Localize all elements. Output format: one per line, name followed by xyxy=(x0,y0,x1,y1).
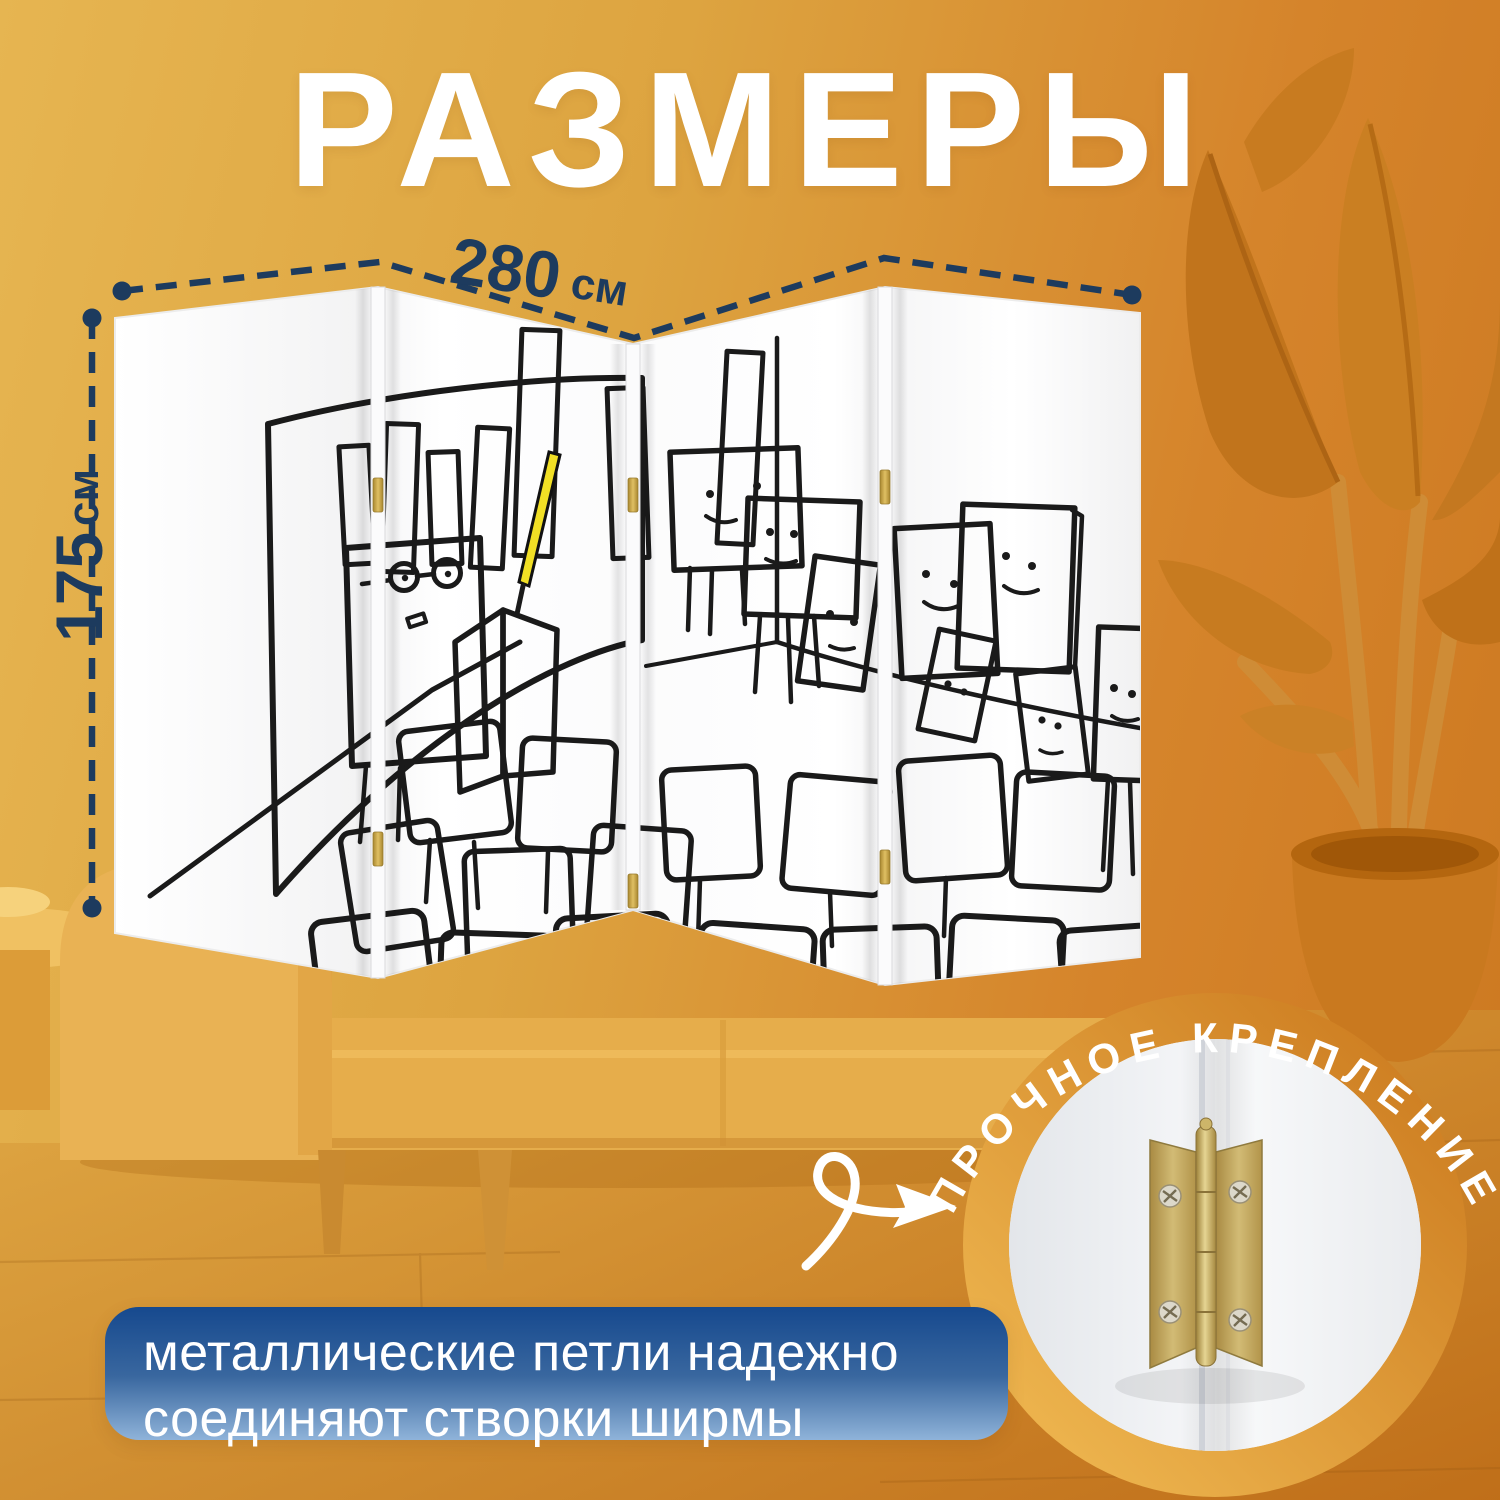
info-box-line1: металлические петли надежно xyxy=(143,1321,1008,1387)
height-unit: см xyxy=(59,469,108,526)
width-unit: см xyxy=(568,259,632,316)
height-value: 175 xyxy=(42,532,116,642)
hinge-photo xyxy=(1009,1039,1421,1451)
width-value: 280 xyxy=(446,223,566,313)
info-box: металлические петли надежно соединяют ст… xyxy=(105,1307,1008,1440)
info-box-line2: соединяют створки ширмы xyxy=(143,1387,1008,1453)
folding-screen xyxy=(115,287,1161,1051)
screen-panel-1 xyxy=(115,287,378,978)
height-dimension-line: 175 см xyxy=(42,309,116,918)
scene-graphic: 280 см 175 см xyxy=(0,0,1500,1500)
product-card: 280 см 175 см xyxy=(0,0,1500,1500)
height-dimension-label: 175 см xyxy=(42,469,116,642)
hinge-icon xyxy=(1150,1118,1262,1368)
page-title: РАЗМЕРЫ xyxy=(0,48,1500,212)
